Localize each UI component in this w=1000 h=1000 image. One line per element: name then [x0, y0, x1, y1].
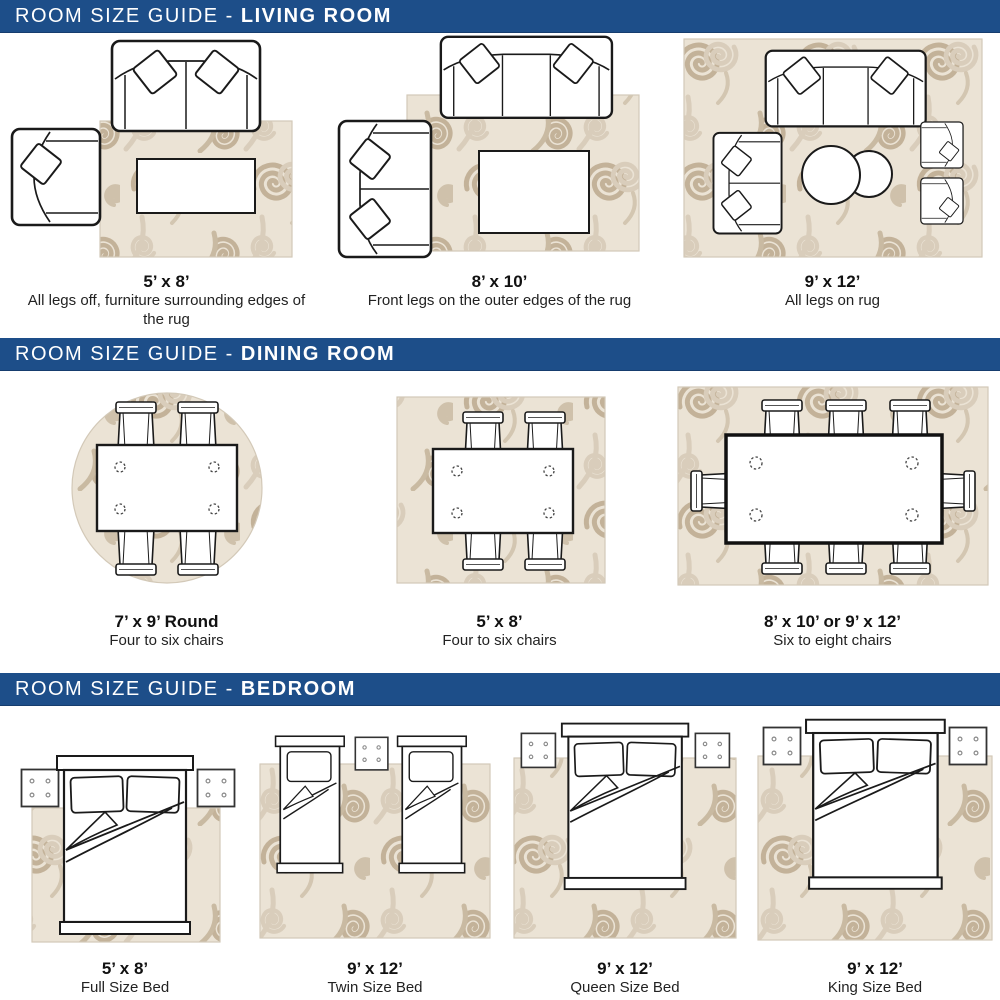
- nightstand: [695, 733, 729, 767]
- section-header-living-room: ROOM SIZE GUIDE - LIVING ROOM: [0, 0, 1000, 33]
- caption-living-9x12: 9’ x 12’ All legs on rug: [785, 271, 880, 311]
- rug-placement-description: All legs on rug: [785, 292, 880, 310]
- section-bedroom: ROOM SIZE GUIDE - BEDROOM 5’ x 8’ Full S…: [0, 673, 1000, 1000]
- sofa-illustration: [766, 51, 926, 127]
- caption-living-5x8: 5’ x 8’ All legs off, furniture surround…: [17, 271, 317, 329]
- header-prefix: ROOM SIZE GUIDE -: [15, 5, 241, 28]
- nightstand: [22, 770, 59, 807]
- armchair-illustration: [921, 178, 963, 224]
- dining-chair: [116, 528, 156, 575]
- header-prefix: ROOM SIZE GUIDE -: [15, 343, 241, 366]
- header-room-name: LIVING ROOM: [241, 5, 392, 28]
- rug-size-label: 9’ x 12’: [828, 958, 922, 979]
- nightstand: [521, 733, 555, 767]
- coffee-table: [479, 151, 589, 233]
- panel-bedroom-king: 9’ x 12’ King Size Bed: [750, 706, 1000, 998]
- twin-bed: [398, 736, 467, 873]
- living-8x10-illustration: [333, 33, 666, 269]
- caption-dining-7x9: 7’ x 9’ Round Four to six chairs: [109, 611, 223, 651]
- header-prefix: ROOM SIZE GUIDE -: [15, 678, 241, 701]
- rug-size-label: 5’ x 8’: [17, 271, 317, 292]
- armchair-illustration: [921, 122, 963, 168]
- dining-table: [97, 445, 237, 531]
- queen-bed: [562, 724, 688, 890]
- rug-placement-description: Full Size Bed: [81, 979, 169, 997]
- rug-placement-description: Twin Size Bed: [327, 979, 422, 997]
- rug-placement-description: Four to six chairs: [442, 632, 556, 650]
- section-dining-room: ROOM SIZE GUIDE - DINING ROOM 7’: [0, 338, 1000, 673]
- rug-placement-description: Six to eight chairs: [764, 632, 901, 650]
- rug-placement-description: Four to six chairs: [109, 632, 223, 650]
- panel-bedroom-twin: 9’ x 12’ Twin Size Bed: [250, 706, 500, 998]
- header-room-name: DINING ROOM: [241, 343, 395, 366]
- rug-size-label: 9’ x 12’: [327, 958, 422, 979]
- rug-size-label: 5’ x 8’: [81, 958, 169, 979]
- caption-bedroom-full: 5’ x 8’ Full Size Bed: [81, 958, 169, 998]
- nightstand: [764, 728, 801, 765]
- rug-size-label: 5’ x 8’: [442, 611, 556, 632]
- caption-bedroom-twin: 9’ x 12’ Twin Size Bed: [327, 958, 422, 998]
- rug-placement-description: All legs off, furniture surrounding edge…: [17, 292, 317, 329]
- room-size-guide-page: ROOM SIZE GUIDE - LIVING ROOM 5’ x 8’ Al…: [0, 0, 1000, 1000]
- dining-chair: [178, 402, 218, 449]
- living-5x8-illustration: [0, 33, 333, 269]
- caption-dining-5x8: 5’ x 8’ Four to six chairs: [442, 611, 556, 651]
- sofa-illustration: [112, 41, 260, 131]
- dining-8x10-illustration: [666, 371, 999, 609]
- coffee-table: [137, 159, 255, 213]
- dining-table: [433, 449, 573, 533]
- dining-chair: [116, 402, 156, 449]
- panel-dining-8x10-9x12: 8’ x 10’ or 9’ x 12’ Six to eight chairs: [666, 371, 999, 651]
- panel-dining-7x9-round: 7’ x 9’ Round Four to six chairs: [0, 371, 333, 651]
- caption-dining-8x10: 8’ x 10’ or 9’ x 12’ Six to eight chairs: [764, 611, 901, 651]
- panel-bedroom-queen: 9’ x 12’ Queen Size Bed: [500, 706, 750, 998]
- panel-living-8x10: 8’ x 10’ Front legs on the outer edges o…: [333, 33, 666, 329]
- twin-bed: [276, 736, 345, 873]
- dining-chair: [178, 528, 218, 575]
- armchair-illustration: [12, 129, 100, 225]
- bedroom-twin-illustration: [250, 706, 500, 956]
- panel-bedroom-full: 5’ x 8’ Full Size Bed: [0, 706, 250, 998]
- caption-bedroom-king: 9’ x 12’ King Size Bed: [828, 958, 922, 998]
- sofa-illustration: [441, 37, 612, 118]
- living-9x12-illustration: [666, 33, 999, 269]
- section-header-bedroom: ROOM SIZE GUIDE - BEDROOM: [0, 673, 1000, 706]
- nightstand: [950, 728, 987, 765]
- caption-bedroom-queen: 9’ x 12’ Queen Size Bed: [570, 958, 679, 998]
- bedroom-full-illustration: [0, 706, 250, 956]
- nightstand: [198, 770, 235, 807]
- section-living-room: ROOM SIZE GUIDE - LIVING ROOM 5’ x 8’ Al…: [0, 0, 1000, 338]
- caption-living-8x10: 8’ x 10’ Front legs on the outer edges o…: [368, 271, 632, 311]
- header-room-name: BEDROOM: [241, 678, 356, 701]
- round-ottoman-large: [802, 146, 860, 204]
- panel-living-9x12: 9’ x 12’ All legs on rug: [666, 33, 999, 329]
- rug-placement-description: Front legs on the outer edges of the rug: [368, 292, 632, 310]
- bedroom-king-illustration: [750, 706, 1000, 956]
- rug-placement-description: Queen Size Bed: [570, 979, 679, 997]
- panel-living-5x8: 5’ x 8’ All legs off, furniture surround…: [0, 33, 333, 329]
- nightstand: [355, 737, 388, 770]
- rug-size-label: 9’ x 12’: [570, 958, 679, 979]
- rug-size-label: 8’ x 10’: [368, 271, 632, 292]
- loveseat-illustration: [713, 133, 781, 234]
- rug-size-label: 8’ x 10’ or 9’ x 12’: [764, 611, 901, 632]
- king-bed: [806, 720, 945, 889]
- bedroom-queen-illustration: [500, 706, 750, 956]
- rug-size-label: 9’ x 12’: [785, 271, 880, 292]
- dining-7x9-round-illustration: [0, 371, 333, 609]
- rug-placement-description: King Size Bed: [828, 979, 922, 997]
- rug-size-label: 7’ x 9’ Round: [109, 611, 223, 632]
- section-header-dining-room: ROOM SIZE GUIDE - DINING ROOM: [0, 338, 1000, 371]
- panel-dining-5x8: 5’ x 8’ Four to six chairs: [333, 371, 666, 651]
- dining-table: [726, 435, 942, 543]
- full-bed: [57, 756, 193, 934]
- loveseat-illustration: [339, 121, 431, 257]
- dining-5x8-illustration: [333, 371, 666, 609]
